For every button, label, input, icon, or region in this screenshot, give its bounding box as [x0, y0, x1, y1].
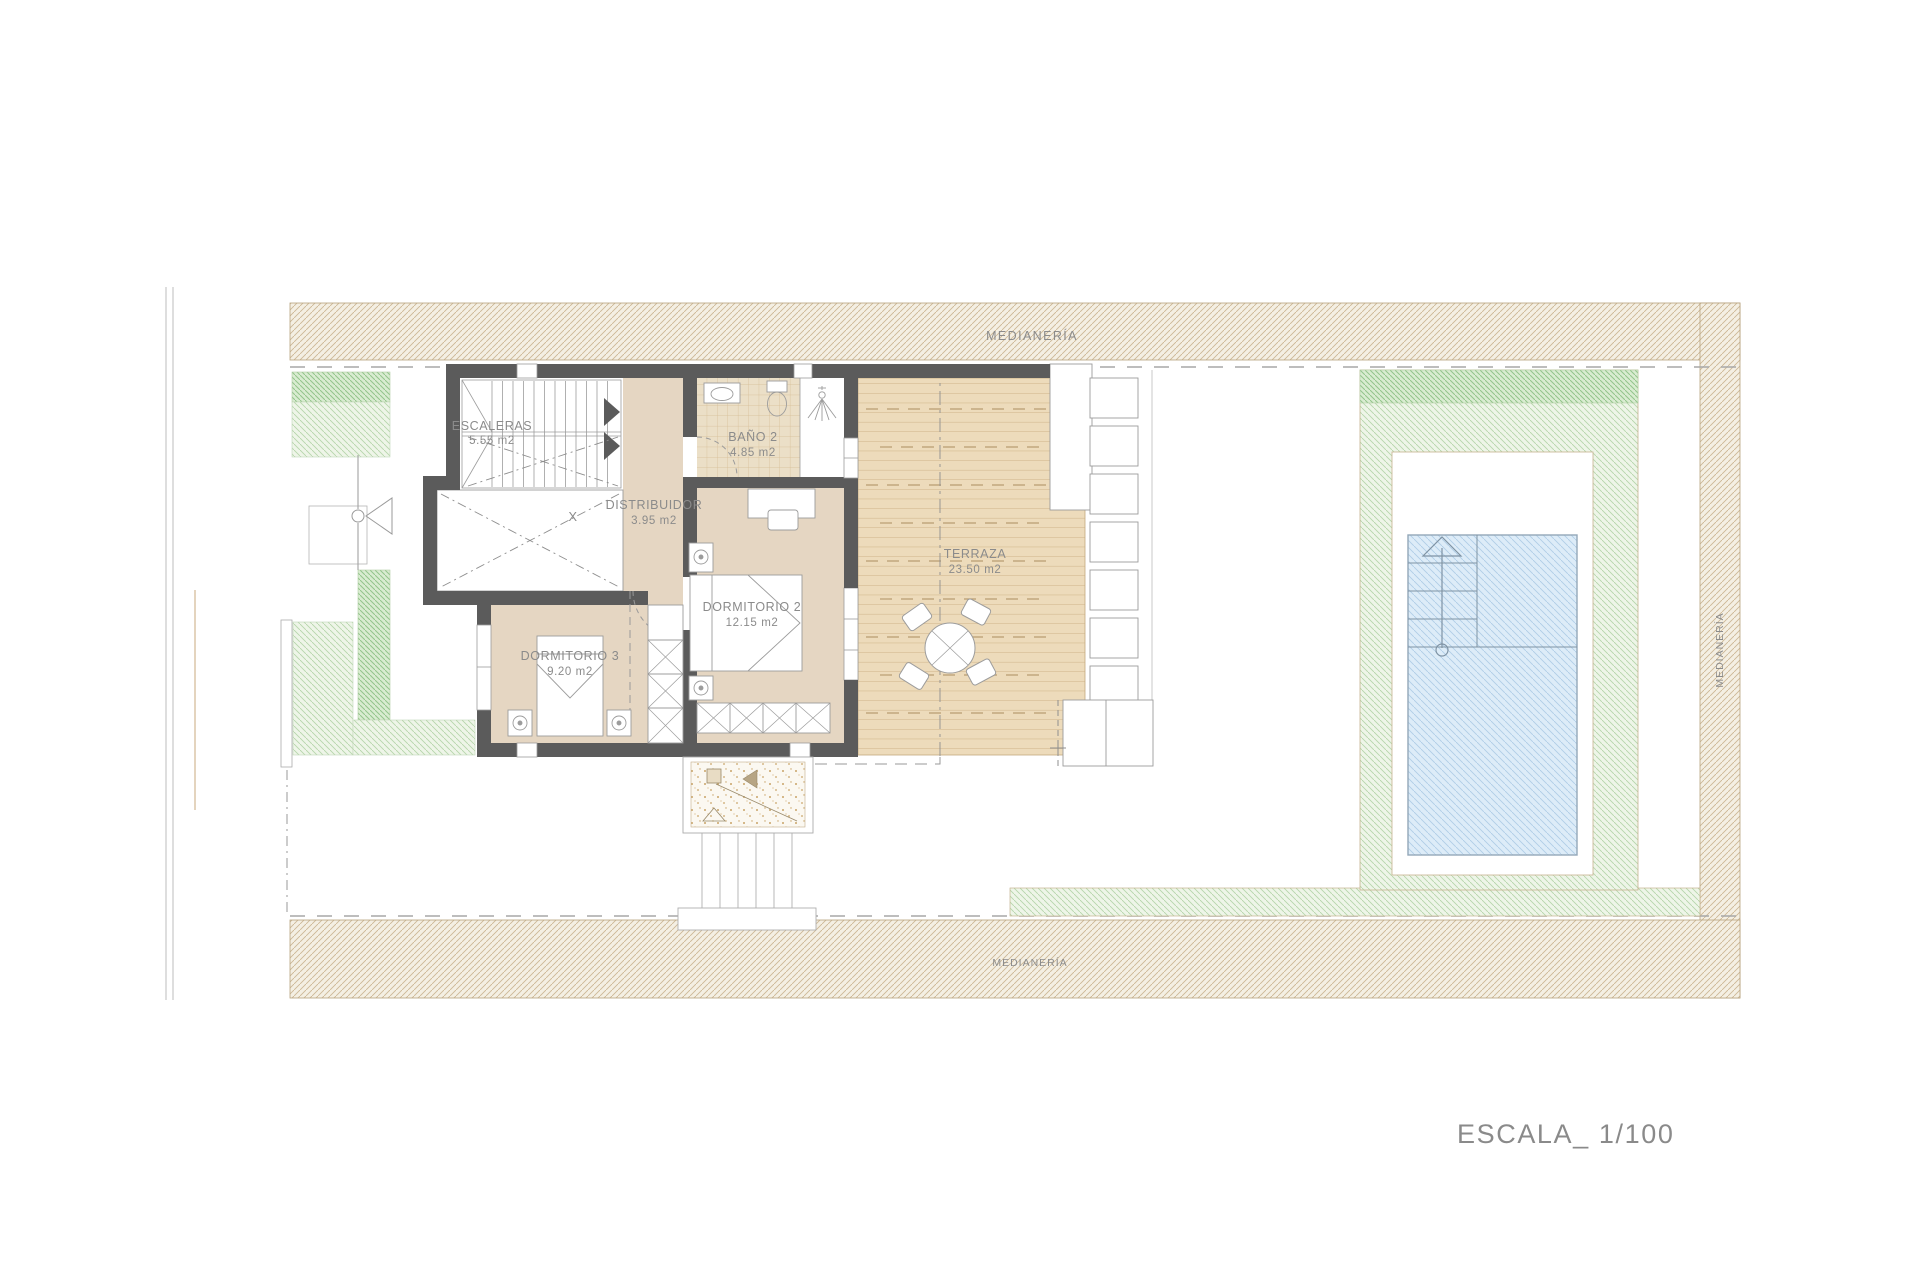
nightstand [689, 676, 713, 700]
street-edge-lines [166, 287, 195, 1000]
garden-strip-bottom [1010, 888, 1700, 916]
label-dormitorio2: DORMITORIO 2 [703, 600, 802, 614]
planter [1050, 364, 1092, 510]
area-escaleras: 5.55 m2 [469, 435, 515, 447]
stair-void: X [437, 490, 623, 591]
boundary-label-bottom: MEDIANERÍA [992, 956, 1067, 969]
front-gate [281, 620, 292, 916]
nightstand [508, 710, 532, 736]
projection-dashed-line [815, 757, 940, 764]
pool [1408, 535, 1577, 855]
pillar [794, 364, 812, 378]
louver-end-box [1063, 700, 1153, 766]
area-dormitorio2: 12.15 m2 [726, 617, 779, 629]
label-escaleras: ESCALERAS [452, 419, 532, 433]
floor-plan-drawing: MEDIANERÍA MEDIANERÍA MEDIANERÍA [0, 0, 1920, 1280]
boundary-band-bottom: MEDIANERÍA [290, 920, 1740, 998]
stairs [460, 378, 623, 490]
pool-garden [1360, 370, 1638, 890]
boundary-band-right: MEDIANERÍA [1700, 303, 1740, 998]
area-bano2: 4.85 m2 [730, 447, 776, 459]
label-dormitorio3: DORMITORIO 3 [521, 649, 620, 663]
nightstand [689, 543, 713, 572]
column-base [707, 769, 721, 783]
window [477, 625, 491, 710]
floor-distribuidor [623, 378, 683, 605]
desk-chair [768, 510, 798, 530]
nightstand [607, 710, 631, 736]
window [844, 588, 858, 680]
pillar [517, 364, 537, 378]
label-terraza: TERRAZA [944, 547, 1007, 561]
shower-tray [800, 378, 844, 477]
terrace-parapet [858, 364, 1050, 378]
wardrobe-column [648, 605, 683, 743]
floor-plan-sheet: MEDIANERÍA MEDIANERÍA MEDIANERÍA [0, 0, 1920, 1280]
void-marker: X [568, 509, 577, 524]
label-distribuidor: DISTRIBUIDOR [606, 498, 703, 512]
area-terraza: 23.50 m2 [949, 564, 1002, 576]
door-opening [683, 437, 697, 477]
boundary-label-right: MEDIANERÍA [1713, 612, 1726, 687]
entry-walkway [678, 833, 816, 930]
pillar [790, 743, 810, 757]
area-dormitorio3: 9.20 m2 [547, 666, 593, 678]
entry-porch [683, 757, 813, 833]
wardrobe [697, 703, 830, 733]
boundary-label-top: MEDIANERÍA [986, 328, 1078, 343]
area-distribuidor: 3.95 m2 [631, 515, 677, 527]
sink [704, 383, 740, 403]
boundary-band-top: MEDIANERÍA [290, 303, 1740, 360]
label-bano2: BAÑO 2 [728, 430, 777, 444]
scale-label: ESCALA_ 1/100 [1457, 1119, 1674, 1149]
pillar [517, 743, 537, 757]
